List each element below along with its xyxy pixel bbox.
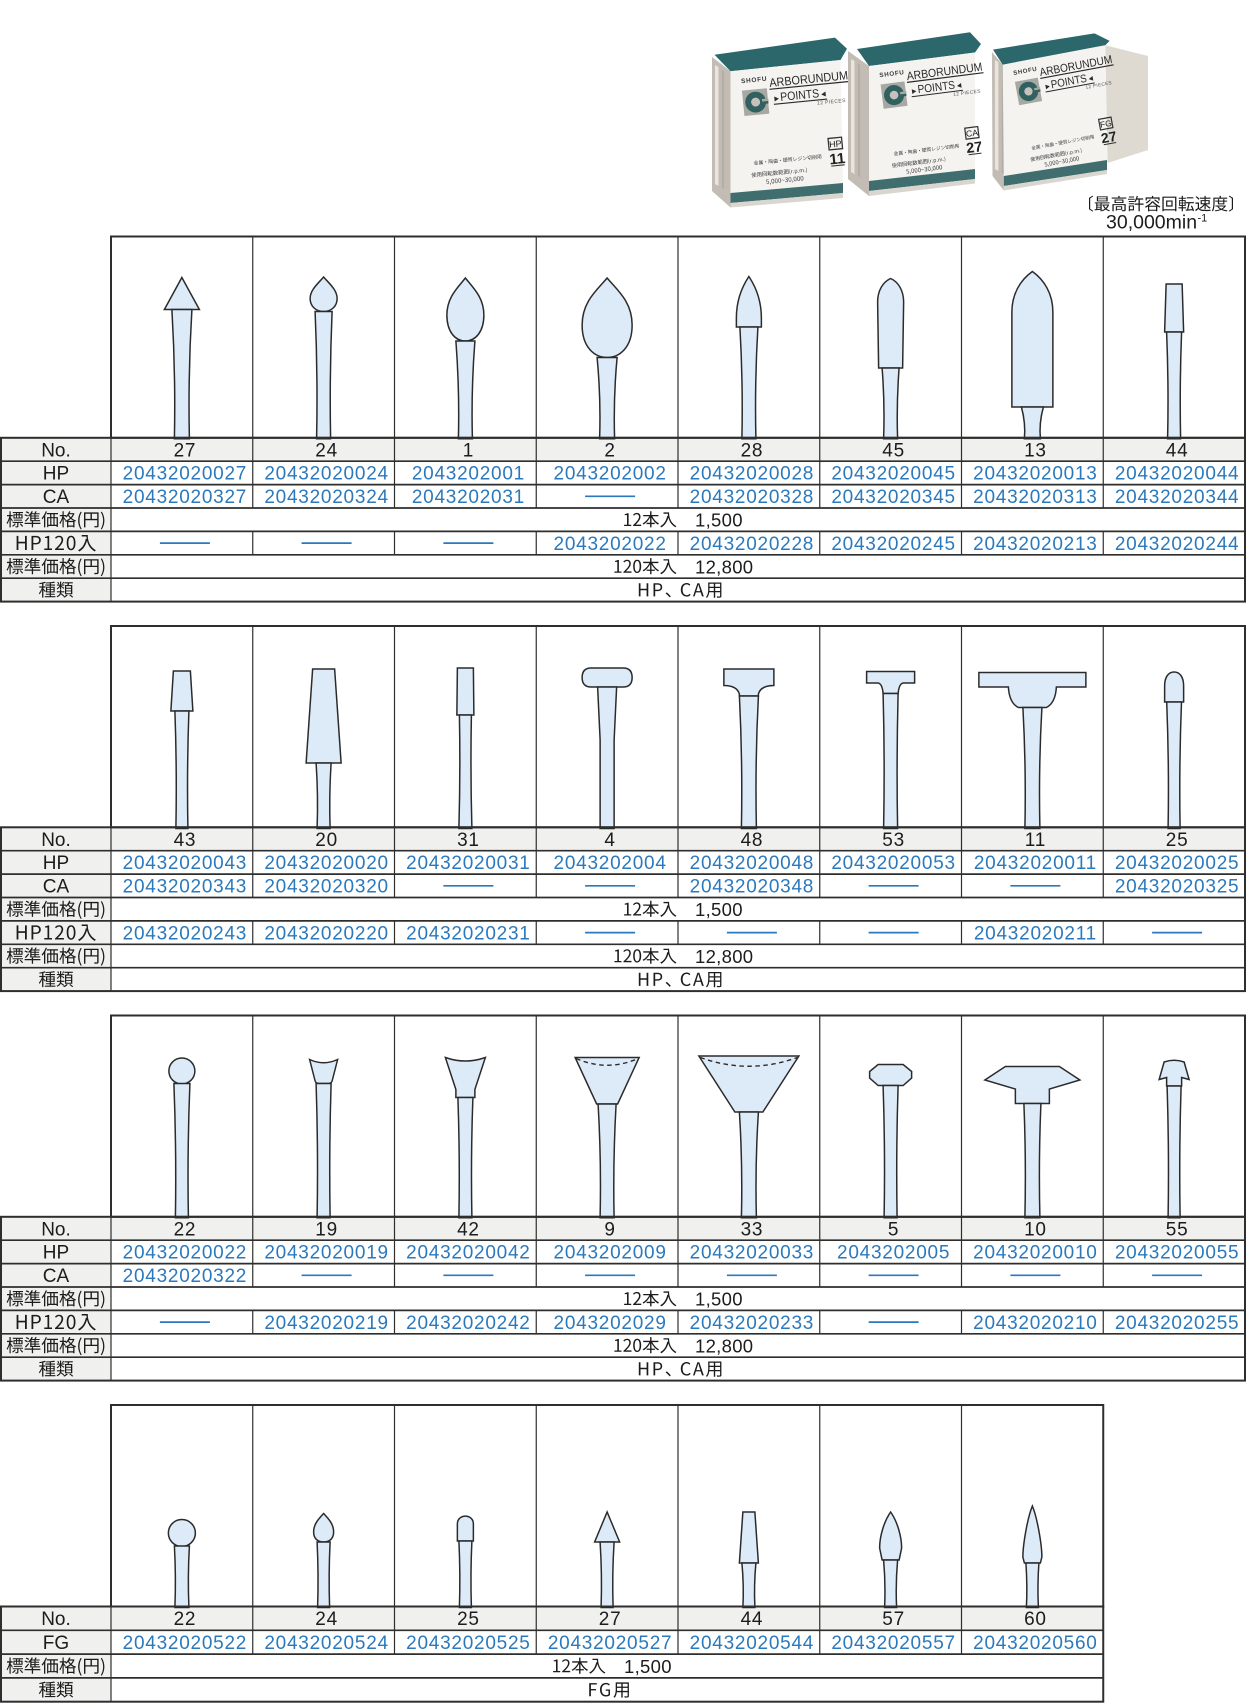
- svg-text:2043202022: 2043202022: [554, 534, 667, 555]
- svg-text:2043202029: 2043202029: [554, 1313, 667, 1334]
- svg-text:20432020044: 20432020044: [1115, 464, 1240, 485]
- svg-text:20432020255: 20432020255: [1115, 1313, 1240, 1334]
- svg-text:No.: No.: [41, 440, 71, 461]
- svg-text:1,500: 1,500: [695, 899, 743, 920]
- svg-text:20432020213: 20432020213: [973, 534, 1098, 555]
- svg-text:27: 27: [599, 1609, 622, 1630]
- svg-text:20432020524: 20432020524: [264, 1633, 389, 1654]
- svg-text:20432020010: 20432020010: [973, 1243, 1098, 1264]
- svg-text:13: 13: [1024, 440, 1047, 461]
- svg-text:12,800: 12,800: [695, 946, 753, 967]
- svg-text:CA: CA: [43, 1266, 70, 1287]
- svg-text:12,800: 12,800: [695, 556, 753, 577]
- svg-text:20432020048: 20432020048: [690, 853, 815, 874]
- svg-text:1,500: 1,500: [695, 510, 743, 531]
- svg-text:55: 55: [1166, 1219, 1189, 1240]
- svg-text:20432020233: 20432020233: [690, 1313, 815, 1334]
- svg-text:22: 22: [174, 1219, 197, 1240]
- svg-text:1,500: 1,500: [695, 1289, 743, 1310]
- svg-text:20432020033: 20432020033: [690, 1243, 815, 1264]
- svg-text:30,000min: 30,000min: [1106, 212, 1197, 234]
- svg-text:2043202001: 2043202001: [412, 464, 525, 485]
- svg-text:20432020345: 20432020345: [831, 487, 956, 508]
- svg-text:No.: No.: [41, 830, 71, 851]
- svg-text:20432020043: 20432020043: [123, 853, 248, 874]
- svg-text:No.: No.: [41, 1609, 71, 1630]
- svg-text:48: 48: [741, 830, 764, 851]
- svg-text:25: 25: [1166, 830, 1189, 851]
- svg-text:1,500: 1,500: [624, 1656, 672, 1677]
- svg-text:20432020320: 20432020320: [264, 877, 389, 898]
- svg-text:60: 60: [1024, 1609, 1047, 1630]
- svg-text:HP: HP: [43, 853, 69, 874]
- svg-text:20432020325: 20432020325: [1115, 877, 1240, 898]
- svg-text:20432020210: 20432020210: [973, 1313, 1098, 1334]
- svg-text:CA: CA: [965, 127, 978, 138]
- svg-text:No.: No.: [41, 1219, 71, 1240]
- svg-text:20432020025: 20432020025: [1115, 853, 1240, 874]
- svg-text:44: 44: [741, 1609, 764, 1630]
- svg-text:20432020024: 20432020024: [264, 464, 389, 485]
- svg-text:20432020211: 20432020211: [974, 923, 1097, 944]
- svg-text:20432020243: 20432020243: [123, 923, 248, 944]
- svg-text:20432020011: 20432020011: [974, 853, 1097, 874]
- svg-text:24: 24: [315, 1609, 338, 1630]
- svg-text:11: 11: [1025, 830, 1046, 851]
- svg-text:33: 33: [741, 1219, 764, 1240]
- svg-text:31: 31: [457, 830, 480, 851]
- svg-text:HP: HP: [43, 464, 69, 485]
- svg-text:20432020042: 20432020042: [406, 1243, 531, 1264]
- svg-text:20432020313: 20432020313: [973, 487, 1098, 508]
- svg-text:4: 4: [604, 830, 615, 851]
- svg-text:20432020522: 20432020522: [123, 1633, 248, 1654]
- svg-text:20432020231: 20432020231: [406, 923, 531, 944]
- svg-text:20432020053: 20432020053: [831, 853, 956, 874]
- svg-text:20432020328: 20432020328: [690, 487, 815, 508]
- svg-text:27: 27: [174, 440, 197, 461]
- svg-text:2043202002: 2043202002: [554, 464, 667, 485]
- svg-text:20432020045: 20432020045: [831, 464, 956, 485]
- svg-text:20432020055: 20432020055: [1115, 1243, 1240, 1264]
- svg-text:20432020220: 20432020220: [264, 923, 389, 944]
- svg-text:CA: CA: [43, 487, 70, 508]
- svg-text:20432020244: 20432020244: [1115, 534, 1240, 555]
- svg-text:20432020245: 20432020245: [831, 534, 956, 555]
- svg-text:20432020348: 20432020348: [690, 877, 815, 898]
- svg-text:20432020019: 20432020019: [264, 1243, 389, 1264]
- svg-text:-1: -1: [1198, 213, 1208, 225]
- svg-text:CA: CA: [43, 877, 70, 898]
- svg-text:20432020327: 20432020327: [123, 487, 248, 508]
- svg-text:20432020020: 20432020020: [264, 853, 389, 874]
- svg-text:53: 53: [882, 830, 905, 851]
- svg-text:20432020557: 20432020557: [831, 1633, 956, 1654]
- svg-text:2: 2: [604, 440, 615, 461]
- svg-text:HP: HP: [829, 138, 842, 149]
- svg-text:20432020031: 20432020031: [406, 853, 531, 874]
- svg-text:HP: HP: [43, 1243, 69, 1264]
- svg-text:12,800: 12,800: [695, 1335, 753, 1356]
- svg-text:2043202005: 2043202005: [837, 1243, 950, 1264]
- svg-text:22: 22: [174, 1609, 197, 1630]
- svg-text:20432020228: 20432020228: [690, 534, 815, 555]
- svg-text:57: 57: [882, 1609, 905, 1630]
- svg-text:20432020028: 20432020028: [690, 464, 815, 485]
- svg-text:20432020324: 20432020324: [264, 487, 389, 508]
- svg-text:20432020022: 20432020022: [123, 1243, 248, 1264]
- svg-text:20432020027: 20432020027: [123, 464, 248, 485]
- svg-text:20432020013: 20432020013: [973, 464, 1098, 485]
- svg-text:19: 19: [315, 1219, 338, 1240]
- svg-text:20432020322: 20432020322: [123, 1266, 248, 1287]
- svg-text:20432020525: 20432020525: [406, 1633, 531, 1654]
- svg-text:24: 24: [315, 440, 338, 461]
- svg-text:20432020527: 20432020527: [548, 1633, 673, 1654]
- svg-text:43: 43: [174, 830, 197, 851]
- svg-text:42: 42: [457, 1219, 480, 1240]
- svg-text:20432020544: 20432020544: [690, 1633, 815, 1654]
- svg-text:5: 5: [888, 1219, 899, 1240]
- svg-text:1: 1: [463, 440, 474, 461]
- svg-text:2043202031: 2043202031: [412, 487, 525, 508]
- svg-text:20432020219: 20432020219: [264, 1313, 389, 1334]
- svg-text:2043202009: 2043202009: [554, 1243, 667, 1264]
- svg-text:28: 28: [741, 440, 764, 461]
- svg-text:10: 10: [1024, 1219, 1047, 1240]
- svg-text:20: 20: [315, 830, 338, 851]
- svg-text:45: 45: [882, 440, 905, 461]
- svg-text:25: 25: [457, 1609, 480, 1630]
- svg-text:20432020344: 20432020344: [1115, 487, 1240, 508]
- svg-text:FG: FG: [43, 1633, 69, 1654]
- svg-text:44: 44: [1166, 440, 1189, 461]
- svg-text:20432020242: 20432020242: [406, 1313, 531, 1334]
- svg-text:9: 9: [604, 1219, 615, 1240]
- svg-text:2043202004: 2043202004: [554, 853, 667, 874]
- svg-text:20432020343: 20432020343: [123, 877, 248, 898]
- svg-text:20432020560: 20432020560: [973, 1633, 1098, 1654]
